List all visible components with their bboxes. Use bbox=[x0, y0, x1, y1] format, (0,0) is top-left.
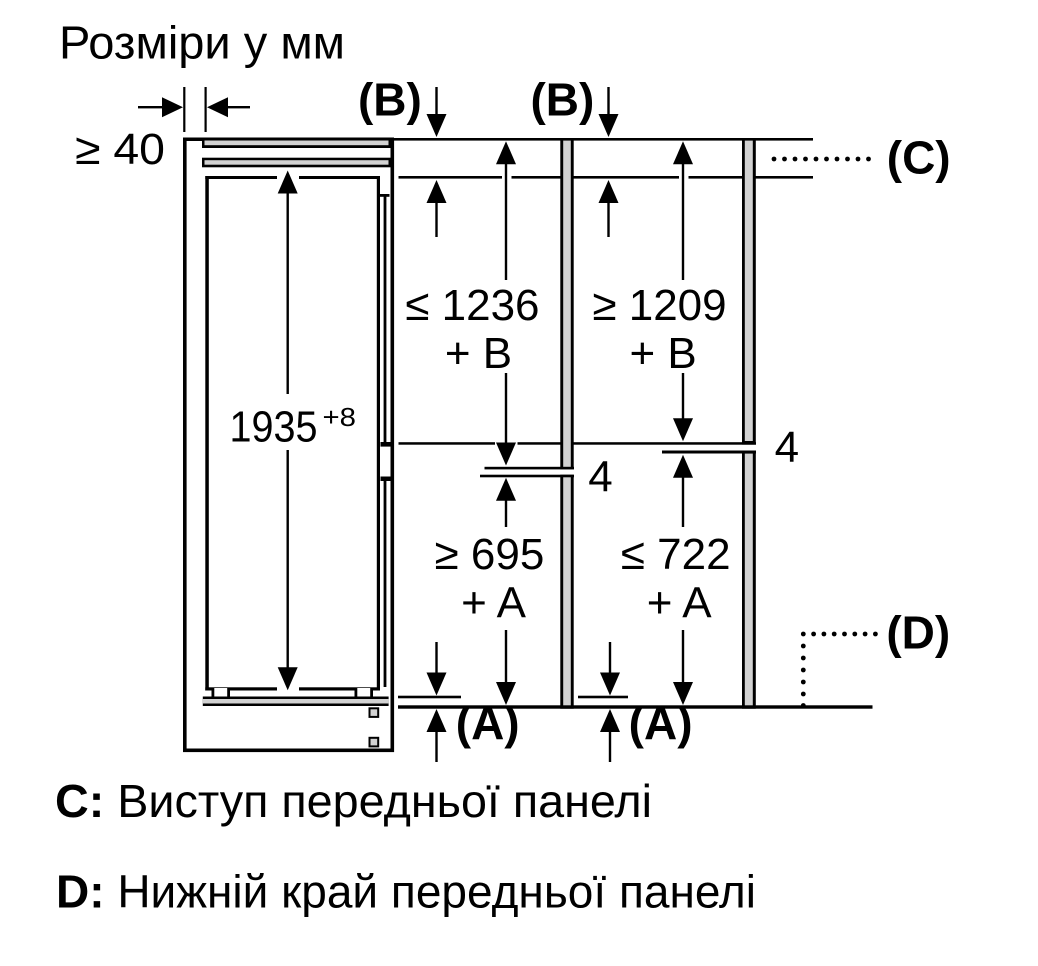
svg-text:+ B: + B bbox=[445, 329, 512, 378]
svg-text:≥ 1209: ≥ 1209 bbox=[592, 281, 726, 330]
svg-text:(A): (A) bbox=[456, 697, 520, 749]
svg-text:(D): (D) bbox=[886, 607, 950, 659]
svg-text:≥ 40: ≥ 40 bbox=[75, 125, 165, 174]
svg-text:(B): (B) bbox=[358, 74, 422, 126]
svg-text:+ A: + A bbox=[461, 579, 526, 628]
svg-text:(A): (A) bbox=[629, 697, 693, 749]
svg-text:4: 4 bbox=[588, 453, 612, 502]
svg-text:1935: 1935 bbox=[230, 403, 318, 452]
svg-text:≤ 1236: ≤ 1236 bbox=[405, 281, 539, 330]
svg-text:Розміри у мм: Розміри у мм bbox=[59, 16, 345, 68]
svg-text:≤ 722: ≤ 722 bbox=[621, 530, 731, 579]
svg-text:+ A: + A bbox=[647, 579, 712, 628]
svg-text:D: Нижній край передньої панел: D: Нижній край передньої панелі bbox=[56, 866, 756, 918]
svg-text:+ B: + B bbox=[629, 329, 696, 378]
svg-text:(B): (B) bbox=[530, 74, 594, 126]
svg-text:+8: +8 bbox=[323, 402, 357, 432]
svg-text:(C): (C) bbox=[887, 132, 951, 184]
svg-text:C: Виступ передньої панелі: C: Виступ передньої панелі bbox=[55, 775, 652, 827]
svg-text:4: 4 bbox=[775, 423, 799, 472]
svg-text:≥ 695: ≥ 695 bbox=[435, 530, 545, 579]
